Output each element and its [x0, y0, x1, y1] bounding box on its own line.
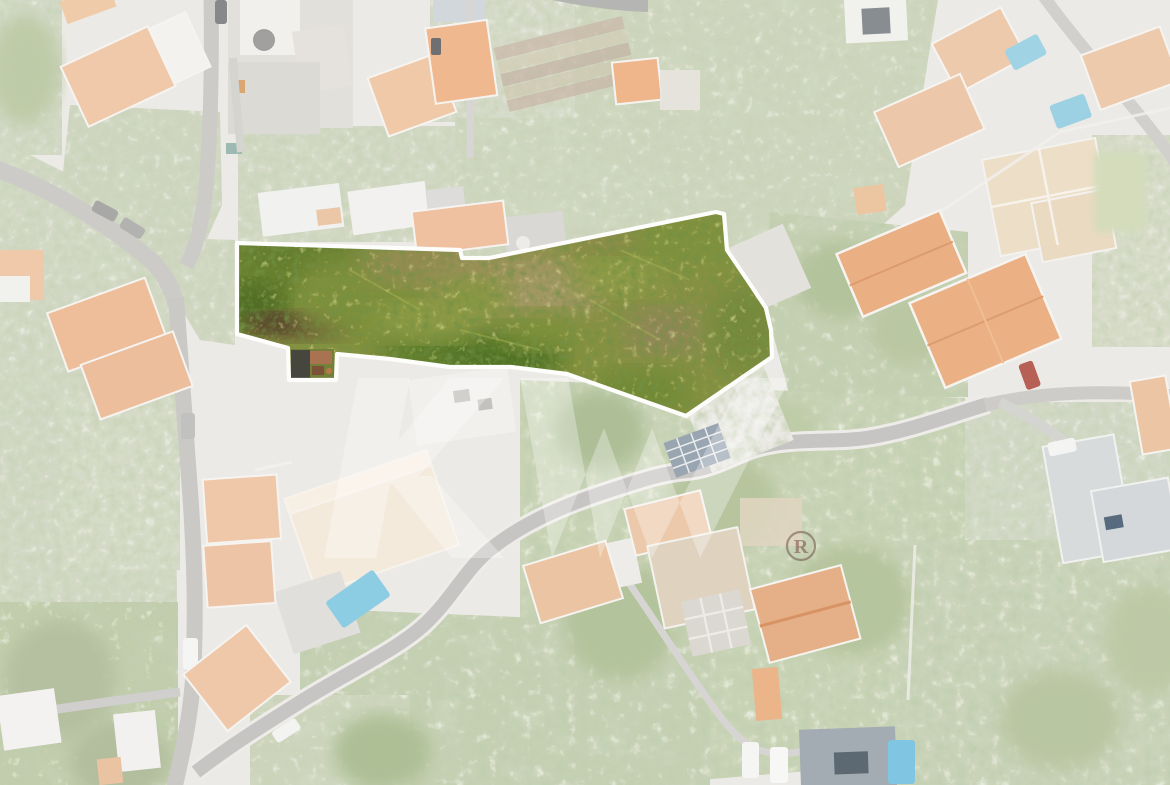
- svg-text:R: R: [794, 536, 809, 558]
